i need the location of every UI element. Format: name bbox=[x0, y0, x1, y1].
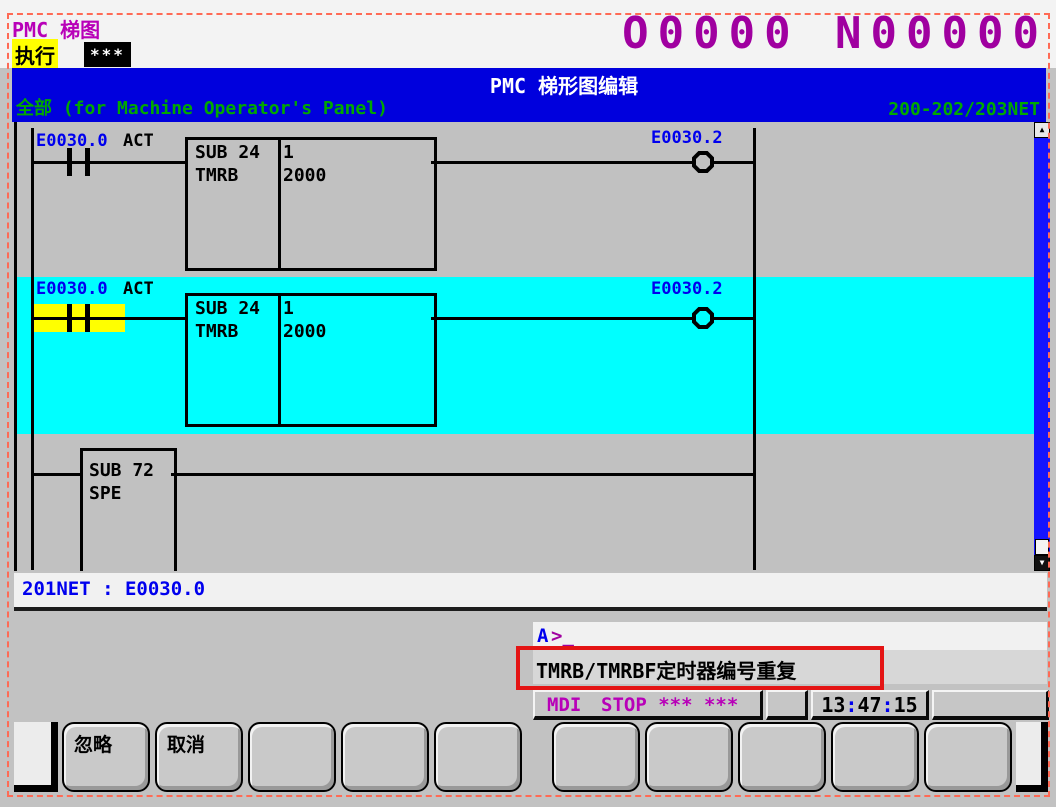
softkey-button[interactable] bbox=[924, 722, 1012, 792]
top-header: PMC 梯图 执行 *** O0000 N00000 bbox=[0, 0, 1056, 68]
pmc-status-stars: *** bbox=[84, 42, 131, 67]
right-power-rail bbox=[753, 128, 756, 570]
status-empty-segment bbox=[766, 690, 808, 720]
rung2-mnemonic: TMRB bbox=[195, 321, 238, 342]
softkey-page-right-button[interactable] bbox=[1016, 722, 1048, 792]
rung2-contact-symbol[interactable] bbox=[67, 304, 72, 332]
status-mode-segment: MDI STOP *** *** bbox=[533, 690, 763, 720]
softkey-ignore-button[interactable]: 忽略 bbox=[62, 722, 150, 792]
status-empty-segment bbox=[932, 690, 1049, 720]
block-divider bbox=[278, 140, 281, 268]
softkey-button[interactable] bbox=[831, 722, 919, 792]
rung2-contact-symbol[interactable] bbox=[85, 304, 90, 332]
nc-mode-indicator: MDI bbox=[547, 694, 581, 716]
rung1-sub-number: SUB 24 bbox=[195, 142, 260, 163]
prompt-cursor: >_ bbox=[551, 625, 574, 647]
prompt-channel: A bbox=[537, 625, 548, 647]
ladder-scrollbar[interactable]: ▲ ▼ bbox=[1034, 122, 1050, 571]
softkey-cancel-button[interactable]: 取消 bbox=[155, 722, 243, 792]
rung3-input-wire bbox=[31, 473, 83, 476]
program-sequence-number: O0000 N00000 bbox=[622, 8, 1048, 59]
rung2-coil-address: E0030.2 bbox=[651, 279, 723, 299]
rung1-timer-preset: 2000 bbox=[283, 165, 326, 186]
status-clock-segment: 13:47:15 bbox=[811, 690, 929, 720]
rung1-contact-address: E0030.0 bbox=[36, 131, 108, 151]
current-net-address: 201NET : E0030.0 bbox=[22, 578, 205, 600]
rung2-timer-number: 1 bbox=[283, 298, 294, 319]
left-power-rail bbox=[31, 128, 34, 570]
rung2-sub-number: SUB 24 bbox=[195, 298, 260, 319]
softkey-page-left-button[interactable] bbox=[14, 722, 58, 792]
selected-net-highlight bbox=[17, 277, 1034, 434]
rung1-coil-address: E0030.2 bbox=[651, 128, 723, 148]
scrollbar-thumb[interactable] bbox=[1035, 539, 1049, 555]
rung1-input-wire bbox=[31, 161, 185, 164]
net-range-indicator: 200-202/203NET bbox=[888, 99, 1040, 120]
rung2-contact-type: ACT bbox=[123, 279, 154, 299]
scroll-down-icon[interactable]: ▼ bbox=[1034, 555, 1050, 571]
net-status-strip: 201NET : E0030.0 bbox=[14, 573, 1047, 611]
crt-screen: PMC 梯图 执行 *** O0000 N00000 PMC 梯形图编辑 全部 … bbox=[0, 0, 1056, 807]
softkey-button[interactable] bbox=[434, 722, 522, 792]
rung2-output-coil[interactable] bbox=[692, 307, 714, 329]
rung1-output-coil[interactable] bbox=[692, 151, 714, 173]
rung3-output-wire bbox=[171, 473, 756, 476]
rung1-mnemonic: TMRB bbox=[195, 165, 238, 186]
clock-display: 13:47:15 bbox=[813, 693, 926, 717]
nc-run-state: STOP *** *** bbox=[601, 694, 738, 716]
rung1-contact-type: ACT bbox=[123, 131, 154, 151]
annotation-highlight-box bbox=[516, 646, 884, 690]
softkey-button[interactable] bbox=[552, 722, 640, 792]
rung3-mnemonic: SPE bbox=[89, 483, 122, 504]
softkey-button[interactable] bbox=[738, 722, 826, 792]
rung3-sub-number: SUB 72 bbox=[89, 460, 154, 481]
rung1-timer-number: 1 bbox=[283, 142, 294, 163]
rung1-contact-symbol[interactable] bbox=[67, 148, 72, 176]
rung2-input-wire bbox=[31, 317, 185, 320]
rung2-contact-address: E0030.0 bbox=[36, 279, 108, 299]
ladder-program-subtitle: 全部 (for Machine Operator's Panel) bbox=[16, 94, 388, 120]
scroll-up-icon[interactable]: ▲ bbox=[1034, 122, 1050, 138]
rung2-timer-preset: 2000 bbox=[283, 321, 326, 342]
screen-title-bar: PMC 梯形图编辑 全部 (for Machine Operator's Pan… bbox=[12, 68, 1046, 122]
softkey-button[interactable] bbox=[341, 722, 429, 792]
ladder-diagram-view: E0030.0 ACT SUB 24 TMRB 1 2000 E0030.2 E… bbox=[14, 122, 1050, 571]
softkey-button[interactable] bbox=[248, 722, 336, 792]
softkey-button[interactable] bbox=[645, 722, 733, 792]
block-divider bbox=[278, 296, 281, 424]
rung1-contact-symbol[interactable] bbox=[85, 148, 90, 176]
pmc-run-mode-badge: 执行 bbox=[12, 39, 58, 70]
